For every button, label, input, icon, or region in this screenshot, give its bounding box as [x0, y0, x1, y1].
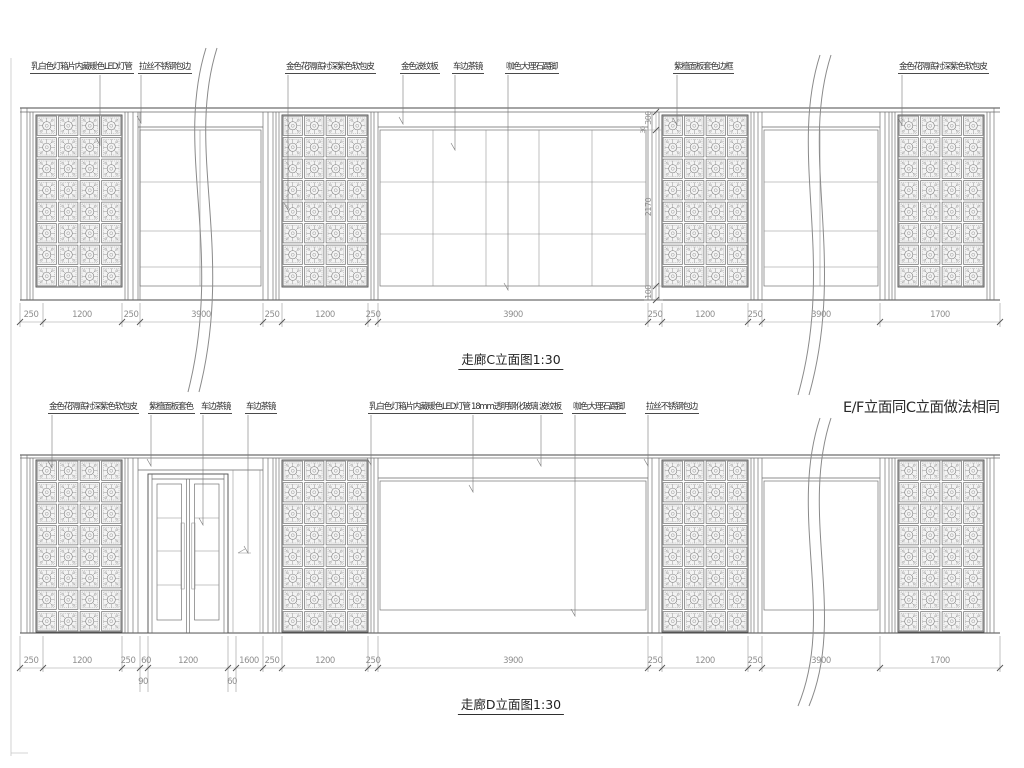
lattice-panel — [898, 460, 984, 632]
material-label: 车边茶镜 — [452, 62, 484, 74]
drawing-sheet: 乳白色灯箱片内藏暖色LED灯管 拉丝不锈钢包边 金色花隔底衬深紫色软包皮 金色波… — [0, 0, 1024, 768]
dimension-sub: 90 — [138, 678, 148, 687]
dimension: 250 — [648, 657, 663, 666]
dimension: 1200 — [72, 657, 92, 666]
dimension: 3900 — [503, 311, 523, 320]
lattice-panel — [36, 115, 122, 287]
dimension: 250 — [265, 657, 280, 666]
lattice-panel — [662, 460, 748, 632]
dimension: 1200 — [178, 657, 198, 666]
material-label: 咖色大理石踢脚 — [505, 62, 559, 74]
break-line — [188, 48, 206, 392]
material-label: 金色花隔底衬深紫色软包皮 — [48, 402, 139, 414]
elevation-c — [17, 48, 1003, 395]
lattice-panel — [36, 460, 122, 632]
dimension: 3900 — [191, 311, 211, 320]
material-label: 18mm透明钢化玻璃 — [470, 402, 539, 414]
material-label: 波纹板 — [538, 402, 563, 414]
material-label: 乳白色灯箱片内藏暖色LED灯管 — [368, 402, 472, 414]
glass-wall — [380, 481, 646, 610]
material-label: 乳白色灯箱片内藏暖色LED灯管 — [30, 62, 134, 74]
mirror-panel — [380, 130, 646, 286]
ef-note: E/F立面同C立面做法相同 — [843, 396, 1000, 417]
double-door — [148, 474, 228, 633]
dimension: 250 — [366, 657, 381, 666]
dimension: 3900 — [811, 657, 831, 666]
lattice-panel — [282, 115, 368, 287]
dimension: 1200 — [315, 311, 335, 320]
dimension: 60 — [141, 657, 151, 666]
material-label: 拉丝不锈钢包边 — [138, 62, 192, 74]
dimension: 1700 — [930, 657, 950, 666]
dimension: 250 — [748, 657, 763, 666]
dimension: 250 — [124, 311, 139, 320]
mirror-panel — [140, 130, 261, 286]
dimension-vertical: 30 — [639, 117, 647, 143]
dimension: 250 — [648, 311, 663, 320]
sheet-border — [11, 58, 28, 756]
dimension: 1700 — [930, 311, 950, 320]
dimension: 1200 — [72, 311, 92, 320]
mirror-panel — [764, 130, 878, 286]
material-label: 金色波纹板 — [400, 62, 440, 74]
material-label: 车边茶镜 — [200, 402, 232, 414]
material-label: 紫檀面板套色 — [148, 402, 195, 414]
material-label: 车边茶镜 — [245, 402, 277, 414]
dimension: 250 — [748, 311, 763, 320]
elevation-d-title: 走廊D立面图1:30 — [458, 697, 564, 715]
dimension: 1200 — [315, 657, 335, 666]
dimension: 1200 — [695, 657, 715, 666]
material-label: 咖色大理石踢脚 — [572, 402, 626, 414]
dimension: 250 — [366, 311, 381, 320]
material-label: 拉丝不锈钢包边 — [645, 402, 699, 414]
dimension: 3900 — [503, 657, 523, 666]
material-label: 金色花隔底衬深紫色软包皮 — [898, 62, 989, 74]
dimension-vertical: 2170 — [645, 194, 653, 220]
elevation-c-title: 走廊C立面图1:30 — [458, 352, 563, 370]
dimension: 250 — [265, 311, 280, 320]
dimension-sub: 60 — [227, 678, 237, 687]
dimension: 250 — [24, 657, 39, 666]
break-line — [798, 55, 820, 395]
dimension: 250 — [121, 657, 136, 666]
lattice-panel — [662, 115, 748, 287]
dimension-vertical: 100 — [645, 279, 653, 305]
lattice-panel — [898, 115, 984, 287]
dimension: 1200 — [695, 311, 715, 320]
dimension: 3900 — [811, 311, 831, 320]
dimension: 250 — [24, 311, 39, 320]
dimension: 1600 — [239, 657, 259, 666]
material-label: 紫檀面板套色边框 — [673, 62, 734, 74]
elevation-linework — [0, 0, 1024, 768]
material-label: 金色花隔底衬深紫色软包皮 — [285, 62, 376, 74]
lattice-panel — [282, 460, 368, 632]
